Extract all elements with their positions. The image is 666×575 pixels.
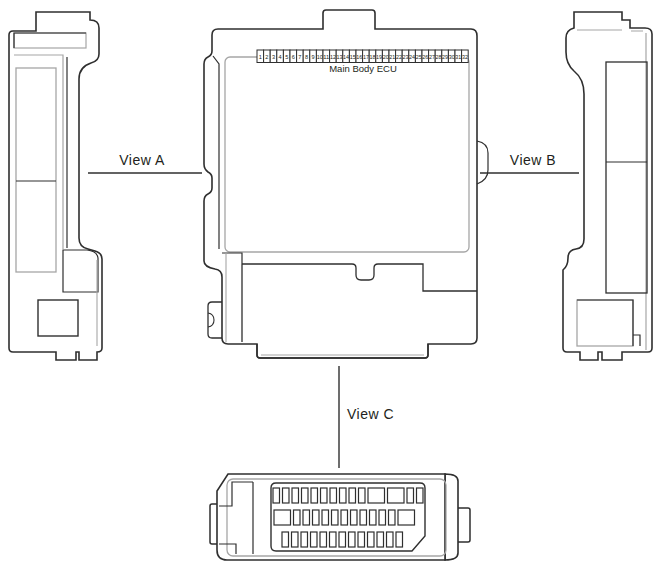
terminal-slot-narrow [370,510,377,525]
view-c-ear-left [210,504,217,544]
pin-number: 11 [323,54,329,60]
terminal-slot-narrow [320,532,327,547]
terminal-slot-narrow [387,532,394,547]
pin-number: 2 [265,54,268,60]
terminal-slot-narrow [389,510,396,525]
pin-number: 6 [292,54,295,60]
pin-number: 1 [259,54,262,60]
terminal-slot-wide [368,488,385,503]
pin-number: 23 [403,54,409,60]
pin-number: 3 [272,54,275,60]
terminal-slot-narrow [377,532,384,547]
terminal-slot-wide [398,510,415,525]
terminal-slot-narrow [349,532,356,547]
terminal-slot-narrow [282,532,289,547]
terminal-slot-narrow [311,488,318,503]
terminal-slot-narrow [417,488,424,503]
pin-number: 27 [429,54,435,60]
terminal-slot-narrow [379,510,386,525]
pin-number: 17 [363,54,369,60]
terminal-slot-narrow [283,488,290,503]
terminal-slot-narrow [340,488,347,503]
pin-number: 13 [337,54,343,60]
terminal-slot-narrow [322,510,329,525]
pin-number: 30 [449,54,455,60]
pin-number: 19 [376,54,382,60]
terminal-slot-narrow [407,488,414,503]
ecu-diagram-page: 1234567891011121314151617181920212223242… [0,0,666,575]
pin-number: 10 [317,54,323,60]
main-body-ecu-label: Main Body ECU [329,63,397,74]
pin-number: 26 [422,54,428,60]
pin-number: 16 [356,54,362,60]
ecu-connector-diagram: 1234567891011121314151617181920212223242… [0,0,666,575]
main-right-latch [477,141,488,184]
main-left-tab [208,302,222,338]
terminal-slot-narrow [321,488,328,503]
terminal-slot-narrow [294,510,301,525]
pin-number: 20 [383,54,389,60]
main-left-tab-bump [208,313,214,327]
terminal-slot-narrow [368,532,375,547]
terminal-slot-narrow [292,488,299,503]
pin-number: 9 [312,54,315,60]
terminal-slot-narrow [330,532,337,547]
terminal-slot-narrow [360,510,367,525]
terminal-slot-narrow [311,532,318,547]
terminal-slot-narrow [351,510,358,525]
pin-number: 32 [462,54,468,60]
terminal-slot-narrow [339,532,346,547]
terminal-slot-narrow [332,510,339,525]
view-a-drawing [9,12,102,360]
terminal-slot-wide [274,510,291,525]
pin-number: 24 [409,54,415,60]
pin-number: 14 [343,54,349,60]
terminal-slot-narrow [358,532,365,547]
pin-number: 8 [305,54,308,60]
top-pin-strip: 1234567891011121314151617181920212223242… [257,50,468,63]
view-b-label: View B [510,152,556,168]
view-c-ear-right [458,508,470,542]
pin-number: 28 [436,54,442,60]
terminal-slot-narrow [341,510,348,525]
pin-number: 31 [455,54,461,60]
view-c-drawing [210,474,470,560]
pin-number: 22 [396,54,402,60]
view-c-right-cap [445,474,458,560]
pin-number: 25 [416,54,422,60]
pin-number: 21 [389,54,395,60]
terminal-slot-wide [388,488,405,503]
view-b-outline [563,12,652,360]
pin-number: 29 [442,54,448,60]
terminal-slot-narrow [349,488,356,503]
main-view-drawing: 1234567891011121314151617181920212223242… [204,10,488,358]
pin-number: 18 [370,54,376,60]
terminal-slot-narrow [359,488,366,503]
terminal-slot-narrow [302,488,309,503]
view-b-drawing [563,12,652,360]
terminal-slot-narrow [273,488,280,503]
terminal-slot-narrow [292,532,299,547]
pin-number: 15 [350,54,356,60]
pin-number: 4 [279,54,282,60]
terminal-slot-narrow [396,532,403,547]
terminal-slot-narrow [313,510,320,525]
pin-number: 12 [330,54,336,60]
view-a-label: View A [119,152,165,168]
terminal-slot-narrow [330,488,337,503]
terminal-slot-narrow [303,510,310,525]
pin-number: 7 [298,54,301,60]
pin-number: 5 [285,54,288,60]
terminal-slot-narrow [301,532,308,547]
view-c-label: View C [347,406,394,422]
